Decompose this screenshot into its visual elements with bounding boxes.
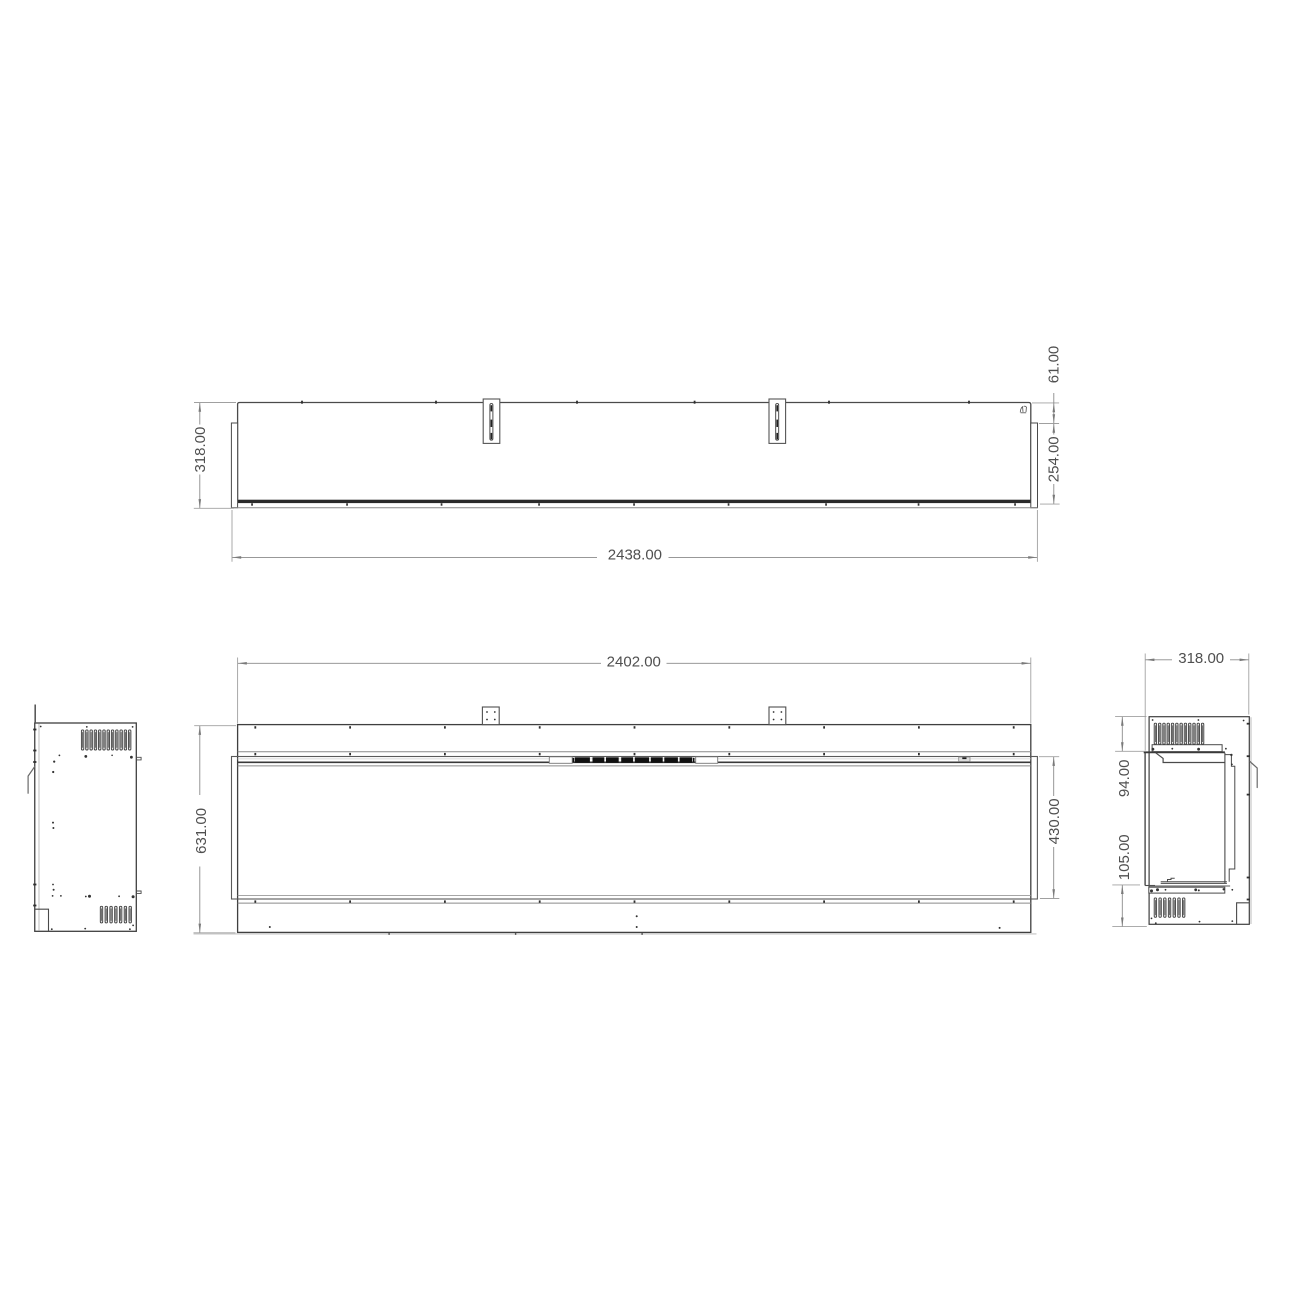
svg-text:105.00: 105.00	[1116, 834, 1133, 880]
svg-text:631.00: 631.00	[193, 808, 210, 854]
svg-text:2438.00: 2438.00	[608, 546, 662, 563]
svg-text:318.00: 318.00	[192, 427, 209, 473]
svg-text:318.00: 318.00	[1178, 650, 1224, 667]
svg-text:61.00: 61.00	[1046, 346, 1063, 384]
svg-text:430.00: 430.00	[1046, 798, 1063, 844]
svg-text:94.00: 94.00	[1116, 760, 1133, 798]
svg-text:2402.00: 2402.00	[607, 653, 661, 670]
svg-text:254.00: 254.00	[1046, 436, 1063, 482]
